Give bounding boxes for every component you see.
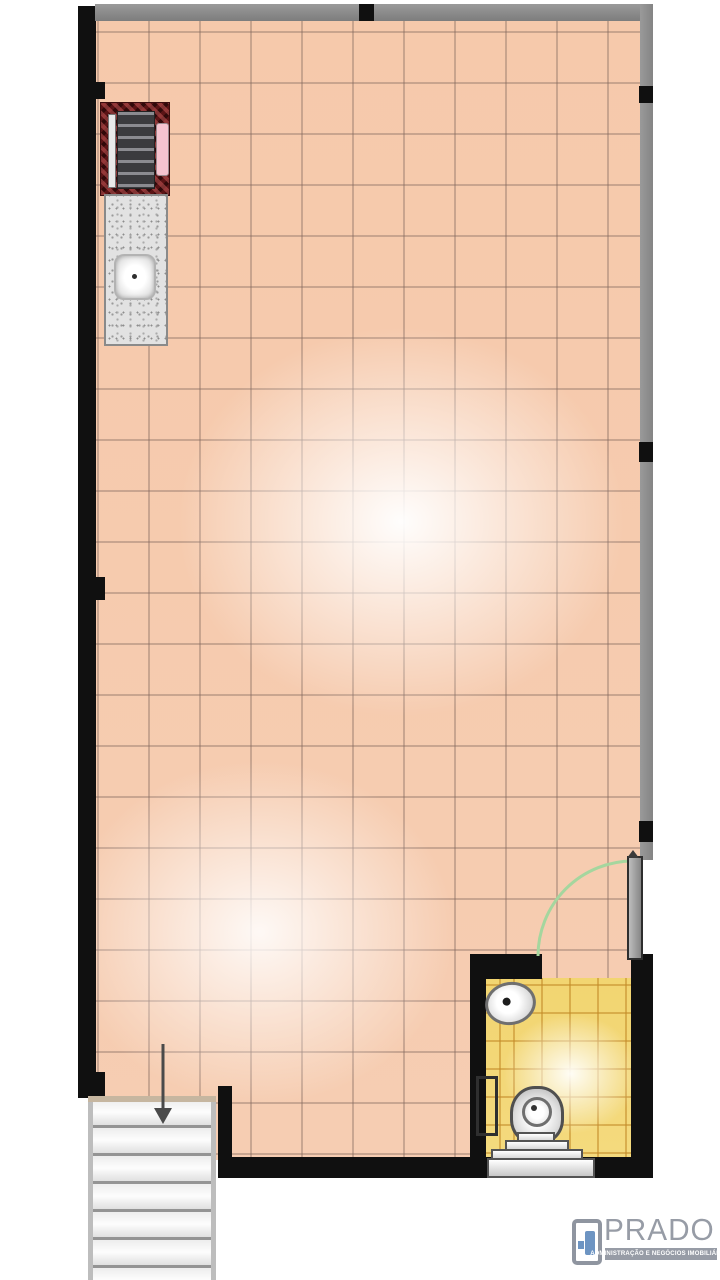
wall-right-lower bbox=[631, 954, 653, 1178]
wall-left-foot bbox=[78, 1072, 105, 1098]
stair-side-wall bbox=[218, 1086, 232, 1161]
wall-top-column bbox=[359, 4, 374, 21]
prado-logo: PRADO ADMINISTRAÇÃO E NEGÓCIOS IMOBILIÁR… bbox=[572, 1213, 718, 1263]
wall-left-pilaster-mid bbox=[96, 577, 105, 600]
logo-brand-text: PRADO bbox=[604, 1213, 713, 1247]
wall-right-column-1 bbox=[639, 86, 653, 103]
wall-left bbox=[78, 6, 96, 1098]
stove-side-strip bbox=[108, 114, 116, 188]
washbasin-drain bbox=[502, 997, 511, 1006]
wall-right-column-3 bbox=[639, 821, 653, 842]
door-logo-icon bbox=[572, 1219, 602, 1265]
stairs-down-arrow bbox=[150, 1038, 178, 1130]
wall-niche bbox=[476, 1076, 498, 1136]
kitchen-sink bbox=[114, 254, 156, 300]
wall-right-column-2 bbox=[639, 442, 653, 462]
toilet-tank-base bbox=[487, 1158, 595, 1178]
wall-left-pilaster-top bbox=[96, 82, 105, 99]
stove bbox=[100, 102, 170, 196]
door-logo-icon-handle bbox=[578, 1241, 584, 1249]
wall-top bbox=[95, 4, 653, 21]
floorplan-canvas: PRADO ADMINISTRAÇÃO E NEGÓCIOS IMOBILIÁR… bbox=[0, 0, 720, 1280]
toilet-bowl-dot bbox=[531, 1105, 537, 1111]
wall-right bbox=[640, 4, 653, 860]
kitchen-sink-drain bbox=[132, 274, 137, 279]
toilet-bowl-ring bbox=[522, 1097, 552, 1127]
logo-tagline: ADMINISTRAÇÃO E NEGÓCIOS IMOBILIÁRIOS bbox=[605, 1248, 717, 1260]
stove-door bbox=[156, 123, 169, 176]
bathroom-wall-left bbox=[470, 954, 486, 1178]
stove-grill bbox=[117, 111, 155, 189]
kitchen-counter bbox=[104, 194, 168, 346]
bathroom-door bbox=[627, 856, 643, 960]
